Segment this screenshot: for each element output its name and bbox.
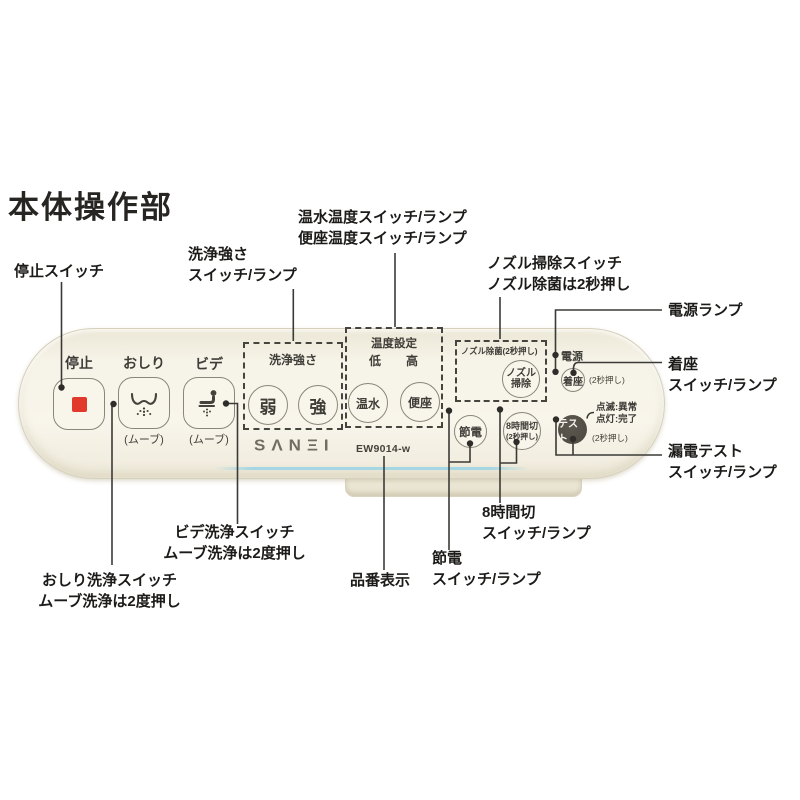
callout-model-display: 品番表示 bbox=[350, 571, 410, 592]
temp-low-label: 低 bbox=[369, 352, 381, 369]
callout-power-save: 節電 スイッチ/ランプ bbox=[432, 549, 541, 590]
callout-8h-timer-line1: 8時間切 bbox=[482, 503, 591, 524]
callout-power-lamp: 電源ランプ bbox=[668, 301, 743, 322]
callout-seating-line1: 着座 bbox=[668, 355, 777, 376]
oshiri-button-label: おしり bbox=[118, 353, 170, 373]
callout-bidet-wash: ビデ洗浄スイッチ ムーブ洗浄は2度押し bbox=[152, 523, 317, 564]
weak-button[interactable]: 弱 bbox=[248, 385, 288, 425]
callout-leak-test: 漏電テスト スイッチ/ランプ bbox=[668, 442, 777, 483]
timer-8h-label: 8時間切 bbox=[506, 421, 538, 432]
callout-bidet-line2: ムーブ洗浄は2度押し bbox=[152, 544, 317, 565]
seating-button[interactable]: 着座 bbox=[561, 368, 585, 392]
callout-temperature-line1: 温水温度スイッチ/ランプ bbox=[298, 208, 467, 229]
callout-oshiri-line1: おしり洗浄スイッチ bbox=[27, 571, 192, 592]
callout-nozzle-clean: ノズル掃除スイッチ ノズル除菌は2秒押し bbox=[487, 254, 630, 295]
nozzle-group-title: ノズル除菌(2秒押し) bbox=[461, 345, 545, 357]
callout-power-save-line2: スイッチ/ランプ bbox=[432, 570, 541, 591]
test-status-text: 点滅:異常 点灯:完了 bbox=[596, 402, 637, 425]
callout-wash-strength-line2: スイッチ/ランプ bbox=[188, 266, 297, 287]
wash-strength-group-title: 洗浄強さ bbox=[245, 351, 341, 368]
diagram-canvas: 本体操作部 停止スイッチ 洗浄強さ スイッチ/ランプ 温水温度スイッチ/ランプ … bbox=[0, 0, 800, 800]
test-note: (2秒押し) bbox=[592, 432, 628, 444]
stop-button[interactable] bbox=[53, 378, 105, 430]
warm-water-button[interactable]: 温水 bbox=[348, 383, 388, 423]
callout-leak-test-line1: 漏電テスト bbox=[668, 442, 777, 463]
bidet-move-label: (ムーブ) bbox=[181, 431, 237, 447]
callout-bidet-line1: ビデ洗浄スイッチ bbox=[152, 523, 317, 544]
temp-high-label: 高 bbox=[406, 352, 418, 369]
nozzle-clean-line2: 掃除 bbox=[506, 379, 536, 391]
panel-blue-accent-line bbox=[215, 467, 528, 470]
timer-8h-button[interactable]: 8時間切 (2秒押し) bbox=[503, 412, 541, 450]
callout-seating-line2: スイッチ/ランプ bbox=[668, 376, 777, 397]
callout-wash-strength: 洗浄強さ スイッチ/ランプ bbox=[188, 245, 297, 286]
strong-button[interactable]: 強 bbox=[298, 385, 338, 425]
power-lamp-label: 電源 bbox=[561, 348, 583, 364]
bidet-button[interactable] bbox=[183, 377, 235, 429]
power-save-button[interactable]: 節電 bbox=[454, 415, 487, 448]
oshiri-move-label: (ムーブ) bbox=[116, 431, 172, 447]
callout-oshiri-line2: ムーブ洗浄は2度押し bbox=[27, 592, 192, 613]
test-status-lit: 点灯:完了 bbox=[596, 414, 637, 426]
test-status-blink: 点滅:異常 bbox=[596, 402, 637, 414]
callout-8h-timer-line2: スイッチ/ランプ bbox=[482, 524, 591, 545]
callout-nozzle-line2: ノズル除菌は2秒押し bbox=[487, 275, 630, 296]
model-number-text: EW9014-w bbox=[356, 443, 410, 455]
oshiri-button[interactable] bbox=[118, 377, 170, 429]
callout-8h-timer: 8時間切 スイッチ/ランプ bbox=[482, 503, 591, 544]
callout-leak-test-line2: スイッチ/ランプ bbox=[668, 463, 777, 484]
nozzle-clean-line1: ノズル bbox=[506, 368, 536, 380]
callout-power-save-line1: 節電 bbox=[432, 549, 541, 570]
brand-logo: SΛNΞI bbox=[254, 437, 335, 455]
leak-test-button[interactable]: テスト bbox=[558, 415, 587, 444]
callout-seating: 着座 スイッチ/ランプ bbox=[668, 355, 777, 396]
bidet-person-icon bbox=[192, 386, 226, 420]
stop-red-square-icon bbox=[72, 397, 87, 412]
stop-button-label: 停止 bbox=[53, 353, 105, 373]
nozzle-clean-button[interactable]: ノズル 掃除 bbox=[502, 360, 540, 398]
callout-oshiri-wash: おしり洗浄スイッチ ムーブ洗浄は2度押し bbox=[27, 571, 192, 612]
callout-nozzle-line1: ノズル掃除スイッチ bbox=[487, 254, 630, 275]
temperature-group-title: 温度設定 bbox=[347, 335, 441, 351]
oshiri-spray-icon bbox=[127, 386, 161, 420]
callout-stop-switch: 停止スイッチ bbox=[14, 262, 104, 283]
page-title: 本体操作部 bbox=[8, 182, 173, 227]
seat-temp-button[interactable]: 便座 bbox=[400, 382, 440, 422]
callout-temperature-line2: 便座温度スイッチ/ランプ bbox=[298, 229, 467, 250]
bidet-button-label: ビデ bbox=[183, 354, 235, 374]
callout-temperature: 温水温度スイッチ/ランプ 便座温度スイッチ/ランプ bbox=[298, 208, 467, 249]
seating-note: (2秒押し) bbox=[589, 374, 625, 386]
timer-8h-note: (2秒押し) bbox=[506, 432, 538, 441]
callout-wash-strength-line1: 洗浄強さ bbox=[188, 245, 297, 266]
